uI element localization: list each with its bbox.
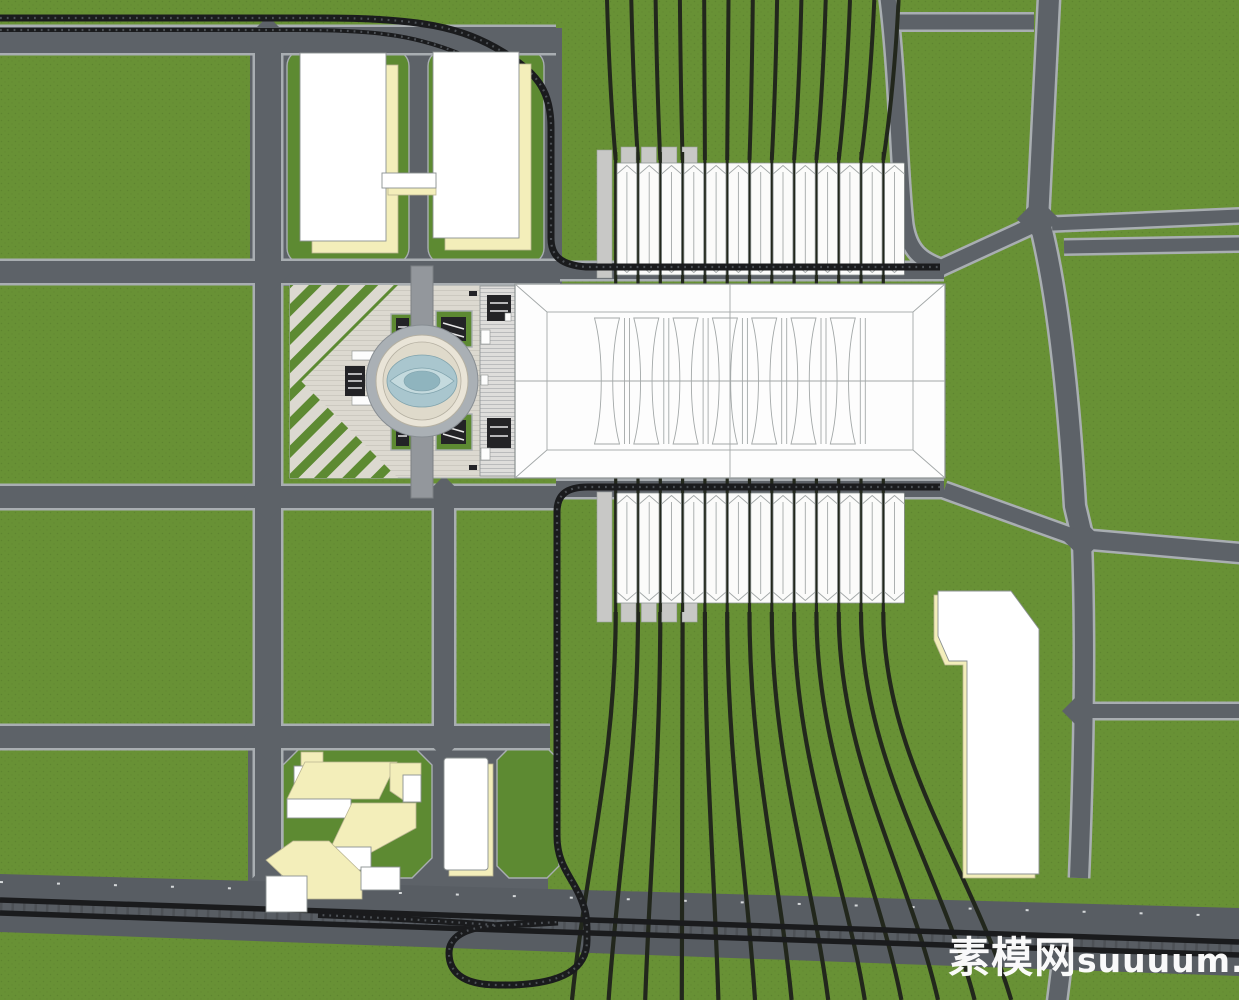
platform-stub bbox=[662, 602, 677, 622]
approach-track-south bbox=[682, 612, 683, 1000]
platform-canopy bbox=[662, 163, 682, 275]
platform-canopy bbox=[773, 163, 793, 275]
platform-canopy bbox=[706, 163, 726, 275]
platform-stub bbox=[621, 147, 636, 164]
approach-track-north bbox=[704, 0, 705, 160]
platform-canopy bbox=[818, 493, 838, 603]
platform-canopy bbox=[840, 163, 860, 275]
platform-canopy bbox=[885, 493, 905, 603]
platform-canopy bbox=[617, 163, 637, 275]
platform-canopy bbox=[818, 163, 838, 275]
platform-canopy bbox=[773, 493, 793, 603]
side-platform-north bbox=[597, 150, 612, 278]
platform-canopy bbox=[729, 163, 749, 275]
platform-canopy bbox=[751, 163, 771, 275]
platform-canopy bbox=[795, 163, 815, 275]
platform-canopy bbox=[862, 493, 882, 603]
platform-canopy bbox=[662, 493, 682, 603]
fountain bbox=[366, 325, 478, 437]
platform-stub bbox=[682, 602, 697, 622]
site-plan-canvas: 素模网suuuum.com bbox=[0, 0, 1239, 1000]
watermark: 素模网suuuum.com bbox=[948, 933, 1239, 982]
platform-stub bbox=[621, 602, 636, 622]
platform-canopy bbox=[885, 163, 905, 275]
station-hall bbox=[480, 284, 945, 478]
watermark-cn: 素模网 bbox=[948, 933, 1077, 982]
office-slab-west bbox=[300, 53, 398, 253]
platform-canopy bbox=[751, 493, 771, 603]
skybridge bbox=[382, 173, 436, 195]
approach-track-north bbox=[727, 0, 728, 160]
platform-stub bbox=[641, 602, 656, 622]
site-plan: 素模网suuuum.com bbox=[0, 0, 1239, 1000]
white-slab bbox=[444, 758, 493, 876]
platform-canopy bbox=[795, 493, 815, 603]
platform-canopy bbox=[684, 493, 704, 603]
platform-canopy bbox=[639, 163, 659, 275]
slab-pad bbox=[497, 748, 559, 878]
platform-stub bbox=[641, 147, 656, 164]
platform-canopy bbox=[684, 163, 704, 275]
watermark-latin: suuuum.com bbox=[1077, 941, 1239, 980]
platform-canopy bbox=[639, 493, 659, 603]
platform-stub bbox=[682, 147, 697, 164]
platform-stub bbox=[662, 147, 677, 164]
platform-canopy bbox=[617, 493, 637, 603]
platform-canopy bbox=[840, 493, 860, 603]
side-platform-south bbox=[597, 492, 612, 622]
office-slab-east bbox=[433, 52, 531, 250]
platform-canopy bbox=[706, 493, 726, 603]
platform-canopy bbox=[729, 493, 749, 603]
platform-canopy bbox=[862, 163, 882, 275]
